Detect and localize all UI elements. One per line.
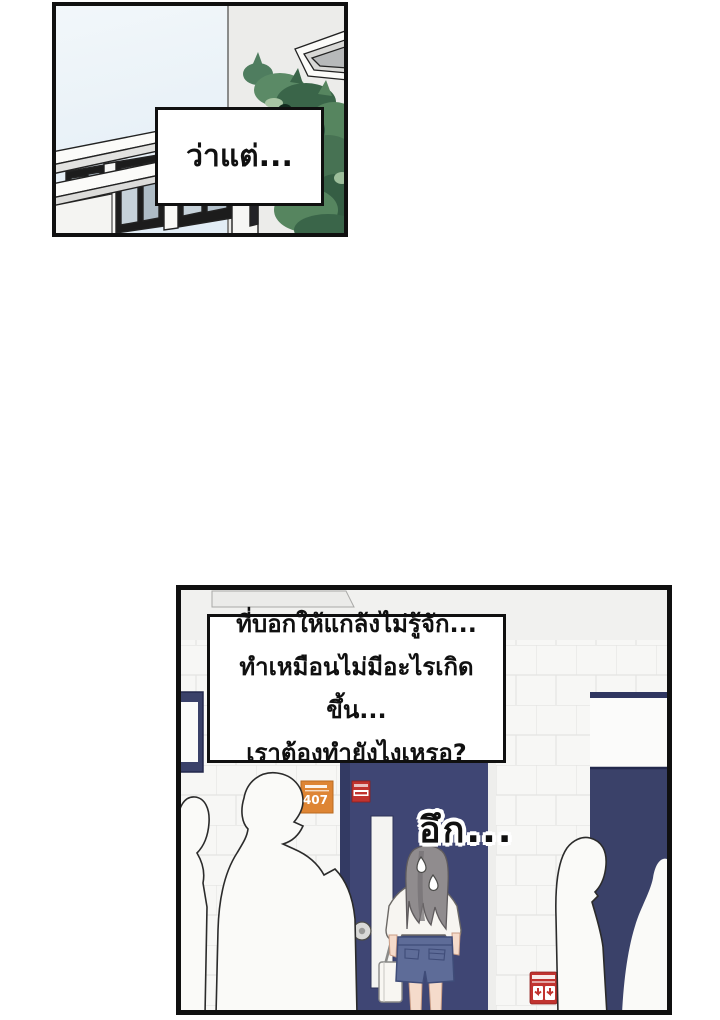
comic-page: { "page": { "type": "webtoon-comic-page"… (0, 0, 720, 1020)
speech-box-bottom: ที่บอกให้แกล้งไม่รู้จัก... ทำเหมือนไม่มี… (207, 614, 506, 763)
speech-line-1: ที่บอกให้แกล้งไม่รู้จัก... (236, 603, 477, 646)
speech-line-2: ทำเหมือนไม่มีอะไรเกิดขึ้น... (210, 646, 503, 732)
speech-line-3: เราต้องทำยังไงเหรอ? (246, 732, 466, 775)
speech-box-top: ว่าแต่... (155, 107, 324, 206)
room-number-label: 407 (302, 793, 328, 807)
fire-extinguisher-sign (530, 972, 557, 1004)
speech-top-text: ว่าแต่... (186, 133, 293, 180)
sfx-text: อึก... (419, 801, 513, 858)
silhouette-right-person (556, 837, 607, 1015)
door-red-sign (352, 781, 370, 802)
